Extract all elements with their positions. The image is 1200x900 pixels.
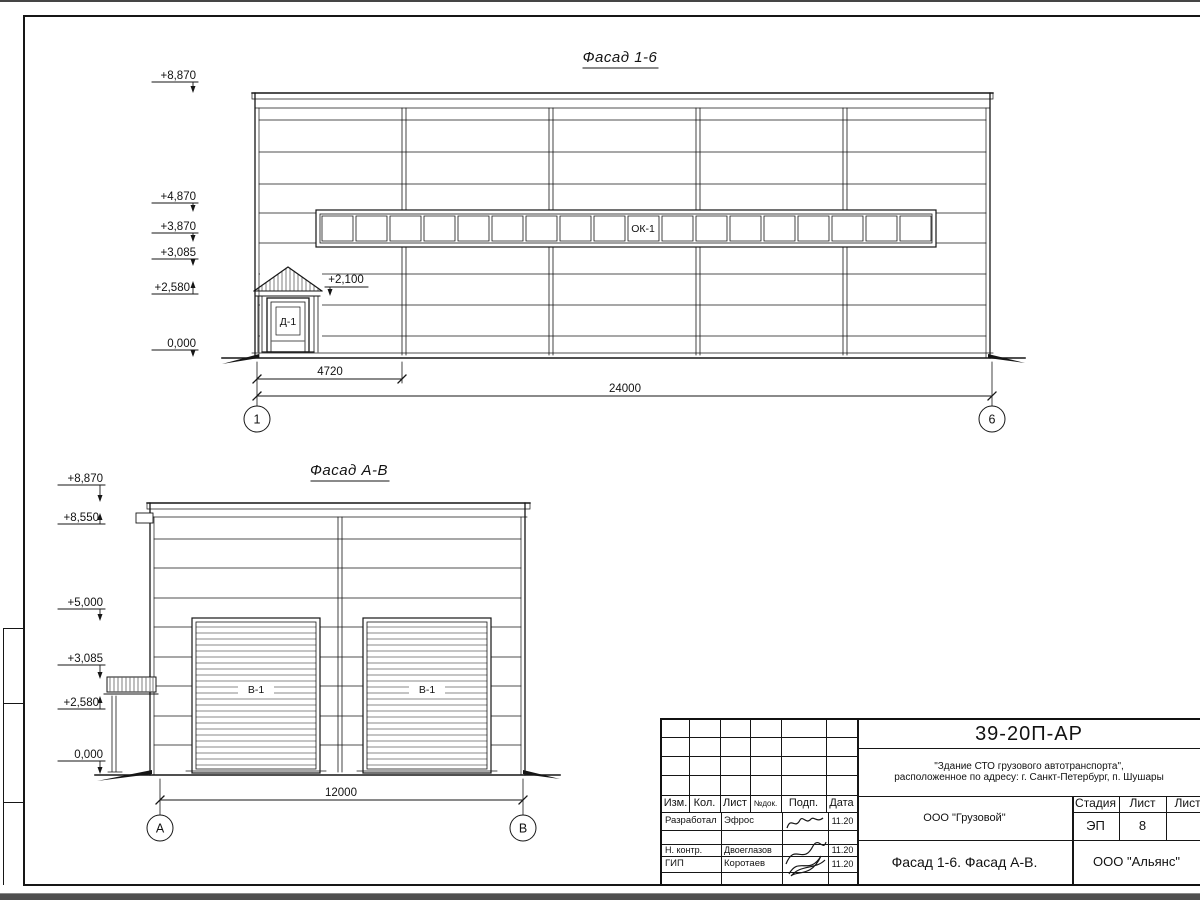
tb-name-developer: Эфрос	[721, 812, 785, 830]
tb-stage-value: ЭП	[1072, 812, 1119, 840]
gate-label-1: В-1	[248, 684, 265, 696]
tb-sheet-title: Фасад 1-6. Фасад А-В.	[857, 840, 1072, 884]
svg-text:+5,000: +5,000	[68, 597, 104, 609]
tb-date-gip: 11.20	[828, 856, 857, 872]
tb-project-name: "Здание СТО грузового автотранспорта", р…	[857, 748, 1200, 796]
dimensions-16: 4720 24000 1 6	[244, 362, 1005, 432]
tb-header-list: Лист	[720, 795, 750, 812]
tb-header-podp: Подп.	[781, 795, 826, 812]
tb-role-gip: ГИП	[662, 856, 724, 872]
facade-a-v: Фасад А-В В-1 В-1	[58, 462, 560, 841]
tb-date-ncontrol: 11.20	[828, 844, 857, 856]
dim-12000: 12000	[325, 787, 357, 799]
tb-sheet-label: Лист	[1119, 796, 1166, 812]
svg-text:0,000: 0,000	[74, 749, 103, 761]
svg-text:0,000: 0,000	[167, 338, 196, 350]
svg-text:+2,580: +2,580	[64, 697, 100, 709]
svg-text:+3,870: +3,870	[161, 221, 197, 233]
axis-bubble-b: В	[519, 822, 527, 836]
facade-1-6-title: Фасад 1-6	[583, 49, 658, 66]
tb-role-ncontrol: Н. контр.	[662, 844, 724, 856]
svg-text:+4,870: +4,870	[161, 191, 197, 203]
door-label: Д-1	[280, 316, 297, 328]
dim-24000: 24000	[609, 383, 641, 395]
tb-sheets-label: Листов	[1166, 796, 1200, 812]
signature-developer	[787, 818, 823, 828]
elevation-marks-16: +8,870 +4,870 +3,870 +3,085 +2,580 0,000	[152, 70, 198, 357]
svg-text:+8,550: +8,550	[64, 512, 100, 524]
svg-text:+8,870: +8,870	[161, 70, 197, 82]
signatures	[781, 812, 831, 882]
tb-project-line2: расположенное по адресу: г. Санкт-Петерб…	[894, 772, 1164, 784]
roller-gate-2: В-1	[363, 618, 491, 773]
signature-gip	[786, 842, 826, 876]
tb-name-ncontrol: Двоеглазов	[721, 844, 785, 856]
roller-gate-1: В-1	[192, 618, 320, 773]
title-block: Изм. Кол. Лист №док. Подп. Дата Разработ…	[660, 718, 1200, 886]
tb-header-kol: Кол.	[689, 795, 720, 812]
svg-text:+3,085: +3,085	[68, 653, 104, 665]
window-label: ОК-1	[631, 223, 655, 235]
tb-line	[662, 775, 857, 776]
svg-text:+2,100: +2,100	[328, 274, 364, 286]
ribbon-window-ok1: ОК-1	[316, 210, 936, 247]
tb-header-ndok: №док.	[750, 795, 781, 812]
axis-bubble-1: 1	[254, 413, 261, 427]
tb-date-developer: 11.20	[828, 812, 857, 830]
roof-pipe	[136, 513, 153, 523]
tb-header-izm: Изм.	[662, 795, 689, 812]
facade-1-6: Фасад 1-6 ОК-1	[152, 49, 1025, 432]
dim-4720: 4720	[317, 366, 343, 378]
svg-text:+3,085: +3,085	[161, 247, 197, 259]
tb-contractor: ООО "Альянс"	[1072, 840, 1200, 884]
tb-line	[662, 737, 857, 738]
tb-company: ООО "Грузовой"	[857, 796, 1072, 840]
tb-project-line1: "Здание СТО грузового автотранспорта",	[934, 761, 1124, 773]
elevation-marks-av: +8,870 +8,550 +5,000 +3,085 +2,580 0,000	[58, 473, 105, 774]
tb-role-developer: Разработал	[662, 812, 724, 830]
axis-bubble-6: 6	[989, 413, 996, 427]
tb-line	[662, 756, 857, 757]
facade-a-v-title: Фасад А-В	[310, 462, 388, 479]
tb-stage-label: Стадия	[1072, 796, 1119, 812]
svg-text:+8,870: +8,870	[68, 473, 104, 485]
elevation-mark-2100: +2,100	[325, 274, 368, 296]
svg-text:+2,580: +2,580	[155, 282, 191, 294]
dimensions-av: 12000 А В	[147, 779, 536, 841]
tb-name-gip: Коротаев	[721, 856, 785, 872]
entrance-porch: Д-1	[254, 266, 322, 353]
gate-label-2: В-1	[419, 684, 436, 696]
axis-bubble-a: А	[156, 822, 165, 836]
facade-a-v-column	[338, 517, 342, 772]
tb-header-data: Дата	[826, 795, 857, 812]
tb-doc-number: 39-20П-АР	[857, 720, 1200, 748]
tb-sheet-value: 8	[1119, 812, 1166, 840]
